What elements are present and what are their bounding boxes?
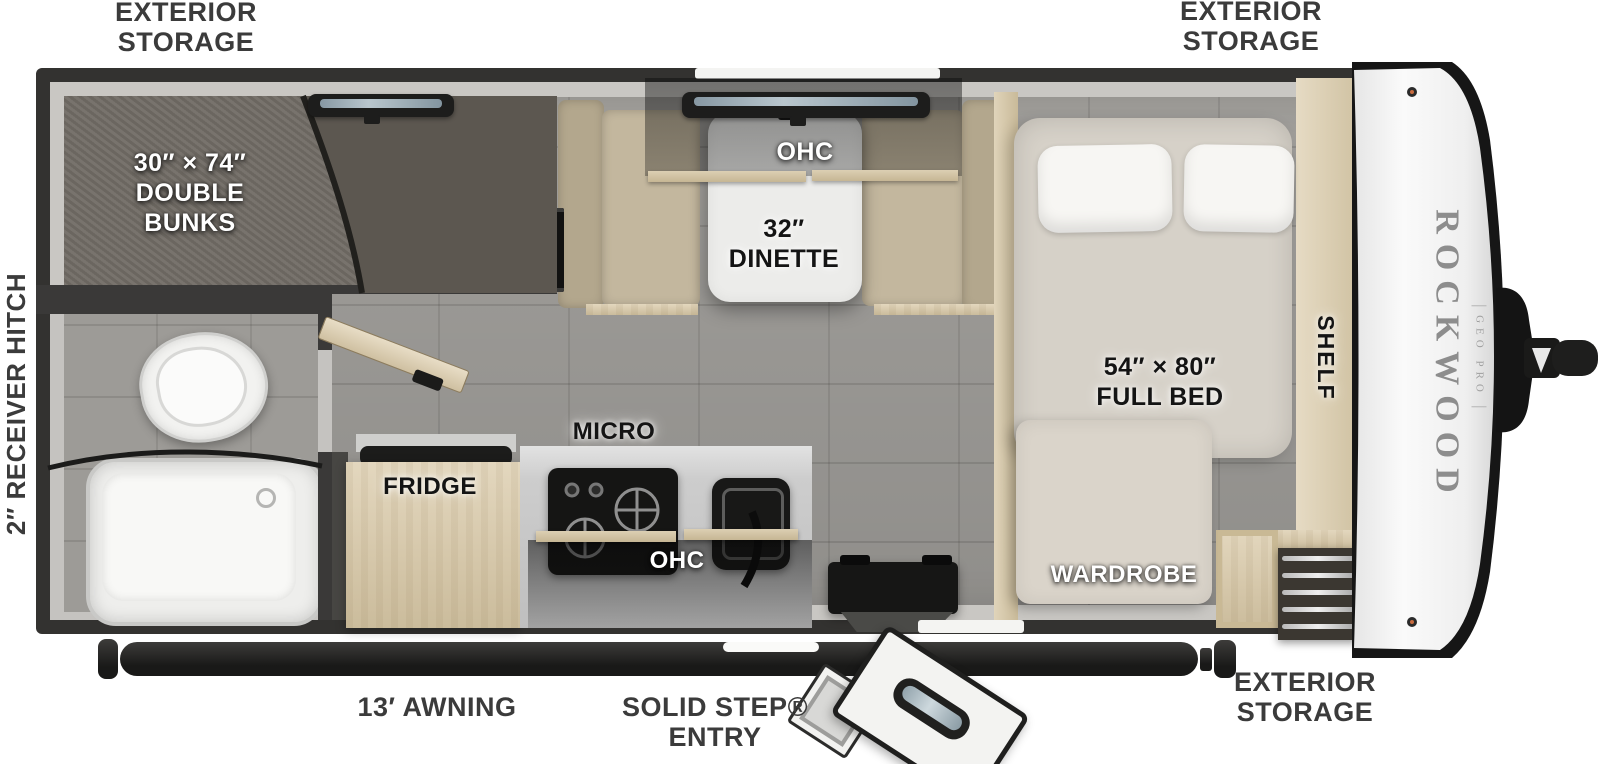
entry-door-window bbox=[888, 673, 976, 746]
brand-block: GEO PRO ROCKWOOD bbox=[1430, 209, 1487, 502]
dinette-bench-left-back bbox=[558, 100, 604, 308]
bunk-window-glass bbox=[320, 99, 442, 108]
bunk-ladder-bracket bbox=[548, 208, 564, 292]
grab-handle bbox=[723, 642, 819, 652]
label-exterior-storage-bottom-right: EXTERIORSTORAGE bbox=[1234, 667, 1376, 727]
label-exterior-storage-top-right: EXTERIORSTORAGE bbox=[1180, 0, 1322, 56]
floorplan-diagram: EXTERIORSTORAGE EXTERIORSTORAGE 2″ RECEI… bbox=[0, 0, 1600, 764]
entry-step-bench bbox=[828, 562, 958, 614]
dinette-ohc-edge-right bbox=[812, 170, 958, 181]
bunk-window bbox=[308, 94, 454, 117]
awning-joint bbox=[1200, 648, 1212, 671]
hitch-coupler bbox=[1524, 338, 1560, 378]
pillow-right bbox=[1183, 144, 1295, 233]
hitch-a-frame bbox=[1496, 288, 1533, 433]
awning-roll bbox=[120, 642, 1198, 676]
toilet-seat bbox=[151, 339, 254, 433]
bathroom-side-wall-lower bbox=[318, 452, 332, 620]
bathroom-top-wall bbox=[36, 285, 332, 314]
bench-right-base-trim bbox=[874, 304, 994, 315]
label-shelf: SHELF bbox=[1311, 315, 1341, 400]
dinette-window-glass bbox=[694, 97, 918, 106]
dinette-window-latch bbox=[790, 116, 806, 126]
bathtub bbox=[86, 458, 324, 626]
label-kitchen-ohc: OHC bbox=[650, 546, 705, 576]
bunk-window-latch bbox=[364, 115, 380, 124]
entry-threshold bbox=[918, 620, 1024, 633]
awning-end-cap-right bbox=[1214, 640, 1236, 678]
label-micro: MICRO bbox=[573, 417, 656, 447]
label-solid-step-entry: SOLID STEP®ENTRY bbox=[622, 692, 808, 752]
storage-rack-drawer bbox=[1216, 530, 1278, 628]
brand-series: GEO PRO bbox=[1472, 305, 1487, 407]
storage-rack-shelves bbox=[1278, 548, 1358, 640]
label-dinette-ohc: OHC bbox=[776, 137, 833, 167]
hitch-coupler-latch bbox=[1532, 348, 1551, 373]
dinette-window bbox=[682, 92, 930, 118]
dinette-ohc-edge-left bbox=[648, 171, 806, 182]
label-double-bunks: 30″ × 74″DOUBLEBUNKS bbox=[134, 148, 247, 238]
bathtub-drain bbox=[256, 488, 276, 508]
label-fridge: FRIDGE bbox=[383, 472, 477, 502]
awning-end-cap-left bbox=[98, 639, 118, 679]
shelf-cabinet bbox=[1296, 78, 1360, 533]
kitchen-ohc-edge-left bbox=[536, 531, 676, 542]
label-full-bed: 54″ × 80″FULL BED bbox=[1096, 352, 1223, 412]
label-dinette: 32″DINETTE bbox=[729, 214, 839, 274]
pillow-left bbox=[1037, 144, 1172, 233]
label-receiver-hitch: 2″ RECEIVER HITCH bbox=[1, 273, 31, 535]
hitch-jack-handle bbox=[1552, 340, 1598, 376]
label-awning: 13′ AWNING bbox=[358, 692, 517, 722]
label-wardrobe: WARDROBE bbox=[1051, 560, 1198, 590]
brand-name: ROCKWOOD bbox=[1430, 209, 1464, 502]
front-cap-rivet-bottom bbox=[1407, 617, 1417, 627]
front-cap-rivet-top bbox=[1407, 87, 1417, 97]
bench-left-base-trim bbox=[586, 304, 698, 315]
kitchen-ohc-edge-right bbox=[684, 529, 798, 540]
label-exterior-storage-top-left: EXTERIORSTORAGE bbox=[115, 0, 257, 57]
